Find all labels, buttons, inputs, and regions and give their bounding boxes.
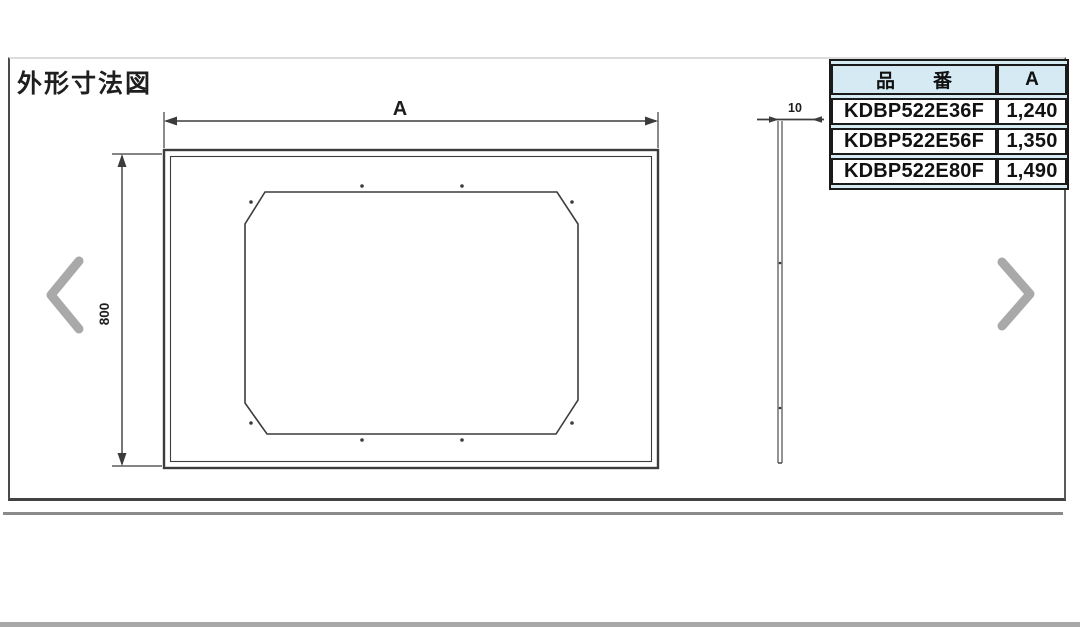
parts-table-header-row: 品 番 A (831, 64, 1067, 95)
chevron-left-icon (38, 250, 90, 340)
dim-a-cell: 1,350 (997, 128, 1067, 155)
bottom-edge-strip (0, 622, 1080, 627)
part-no-cell: KDBP522E80F (831, 158, 997, 185)
part-no-header: 品 番 (831, 64, 997, 95)
carousel-prev-button[interactable] (38, 250, 90, 340)
chevron-right-icon (992, 250, 1044, 340)
dim-a-cell: 1,490 (997, 158, 1067, 185)
part-no-cell: KDBP522E36F (831, 98, 997, 125)
dim-a-cell: 1,240 (997, 98, 1067, 125)
dim-a-header: A (997, 64, 1067, 95)
sheet-bottom-line (3, 512, 1063, 515)
part-no-cell: KDBP522E56F (831, 128, 997, 155)
image-viewer: 外形寸法図 A (0, 0, 1080, 627)
table-row: KDBP522E56F 1,350 (831, 128, 1067, 155)
page-title: 外形寸法図 (17, 64, 152, 100)
parts-table: 品 番 A KDBP522E36F 1,240 KDBP522E56F 1,35… (829, 59, 1069, 190)
carousel-next-button[interactable] (992, 250, 1044, 340)
table-row: KDBP522E36F 1,240 (831, 98, 1067, 125)
table-row: KDBP522E80F 1,490 (831, 158, 1067, 185)
